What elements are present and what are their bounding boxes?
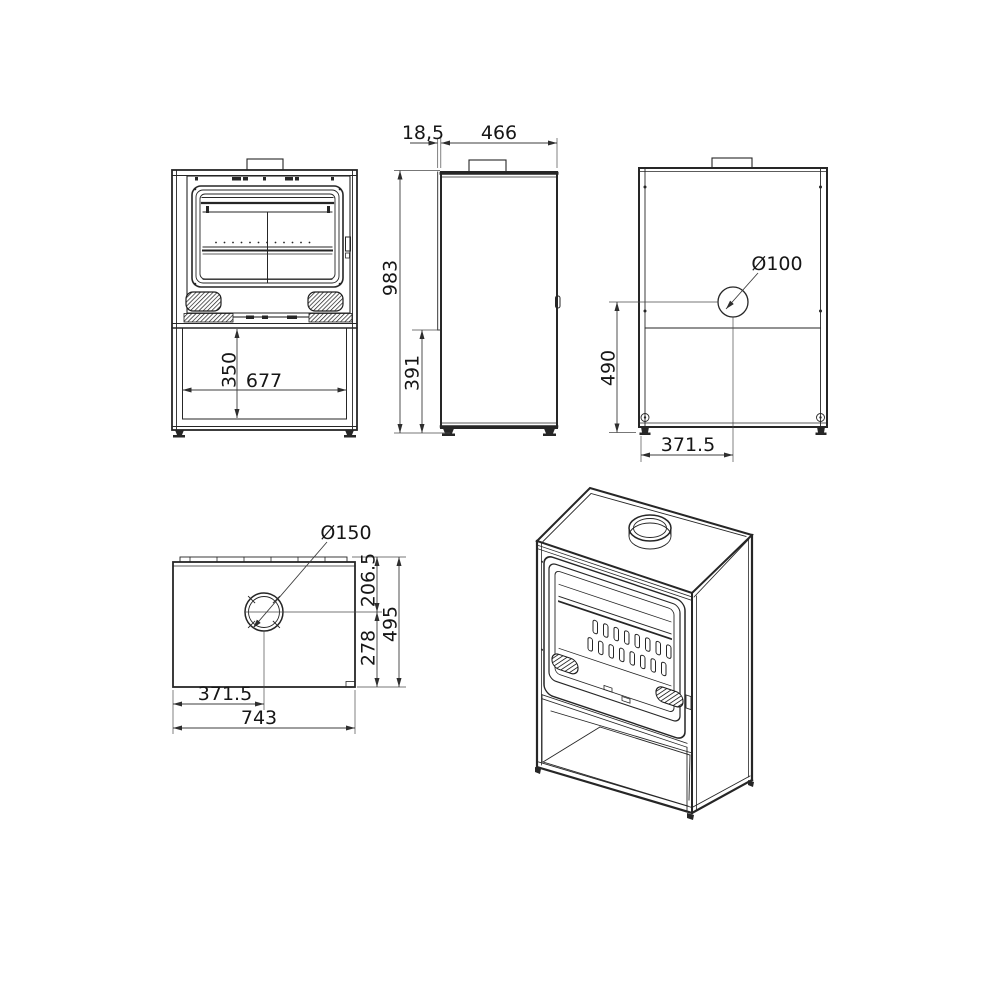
front-left-lower-grille <box>184 314 233 323</box>
iso-left-vent-grille <box>552 652 578 676</box>
dim-label-back-inlet-offset: 371.5 <box>661 434 715 456</box>
dim-front-base-height: 350 <box>219 329 241 418</box>
back-flue-stub <box>712 158 752 168</box>
isometric-view <box>535 488 754 820</box>
dim-front-base-width: 677 <box>183 370 347 392</box>
dim-label-side-depth: 466 <box>481 122 517 144</box>
side-body-outline <box>441 172 557 428</box>
dim-top-total-width: 743 <box>173 707 355 729</box>
dim-side-door-offset: 18,5 <box>402 122 444 144</box>
iso-flue-collar <box>629 515 671 549</box>
dim-label-back-inlet-height: 490 <box>598 350 620 386</box>
dim-top-flue-to-front: 278 <box>358 612 380 687</box>
dim-label-top-flue-to-back: 206.5 <box>358 553 380 607</box>
iso-door-latch <box>686 695 691 710</box>
dim-label-side-lower-height: 391 <box>402 355 424 391</box>
top-view: Ø150 206.5 278 495 371.5 743 <box>173 522 406 734</box>
iso-firebox-panel <box>544 554 685 740</box>
front-top-strip-marks <box>195 177 334 181</box>
dim-back-inlet-height: 490 <box>598 302 620 433</box>
front-left-vent-grille <box>186 292 221 311</box>
technical-drawing-page: 350 677 18,5 466 <box>0 0 1000 1000</box>
side-view: 18,5 466 983 391 <box>380 122 561 436</box>
side-feet <box>442 429 556 437</box>
dim-side-lower-height: 391 <box>402 330 424 433</box>
dim-label-top-flue-from-left: 371.5 <box>198 683 252 705</box>
dim-label-side-total-height: 983 <box>380 260 402 296</box>
dim-back-inlet-offset: 371.5 <box>641 434 733 456</box>
back-air-inlet-hole <box>718 287 748 317</box>
front-air-holes <box>215 242 310 244</box>
dim-side-depth: 466 <box>441 122 557 144</box>
stove-dimension-drawing: 350 677 18,5 466 <box>0 0 1000 1000</box>
dim-label-back-air-inlet-diameter: Ø100 <box>751 253 802 275</box>
dim-label-front-base-width: 677 <box>246 370 282 392</box>
front-view: 350 677 <box>172 159 357 438</box>
back-view: Ø100 490 371.5 <box>598 158 828 462</box>
dim-side-total-height: 983 <box>380 171 402 434</box>
dim-back-air-inlet-diameter: Ø100 <box>726 253 803 309</box>
iso-grate-slots <box>588 618 671 678</box>
dim-label-front-base-height: 350 <box>219 352 241 388</box>
side-flue-stub <box>469 160 506 172</box>
dim-label-top-total-width: 743 <box>241 707 277 729</box>
dim-label-top-total-depth: 495 <box>380 606 402 642</box>
dim-label-top-flue-diameter: Ø150 <box>320 522 371 544</box>
iso-right-vent-grille <box>656 685 683 709</box>
front-feet <box>173 430 356 438</box>
front-door <box>192 186 351 287</box>
dim-label-side-door-offset: 18,5 <box>402 122 444 144</box>
front-right-vent-grille <box>308 292 343 311</box>
front-flue-stub <box>247 159 283 170</box>
front-right-lower-grille <box>309 314 352 323</box>
dim-top-total-depth: 495 <box>380 557 402 687</box>
dim-top-flue-to-back: 206.5 <box>358 553 380 612</box>
dim-label-top-flue-to-front: 278 <box>358 630 380 666</box>
